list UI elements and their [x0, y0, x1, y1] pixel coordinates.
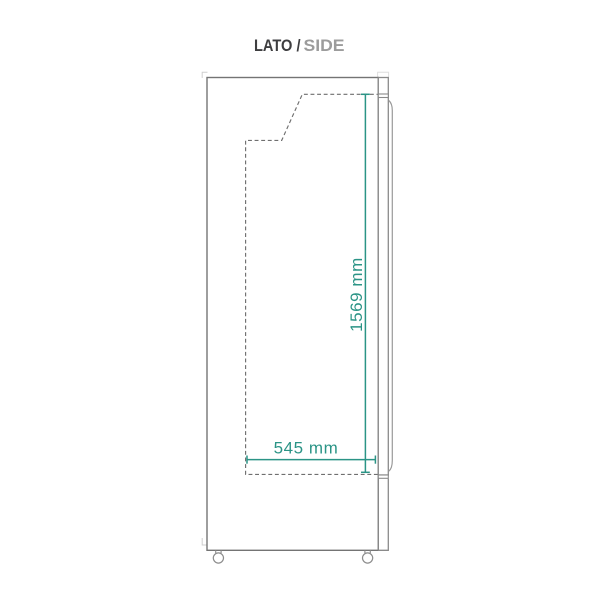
svg-text:LATO /: LATO / [254, 36, 301, 55]
svg-text:1569 mm: 1569 mm [347, 257, 366, 332]
svg-text:545 mm: 545 mm [274, 439, 339, 458]
svg-text:SIDE: SIDE [304, 36, 345, 55]
